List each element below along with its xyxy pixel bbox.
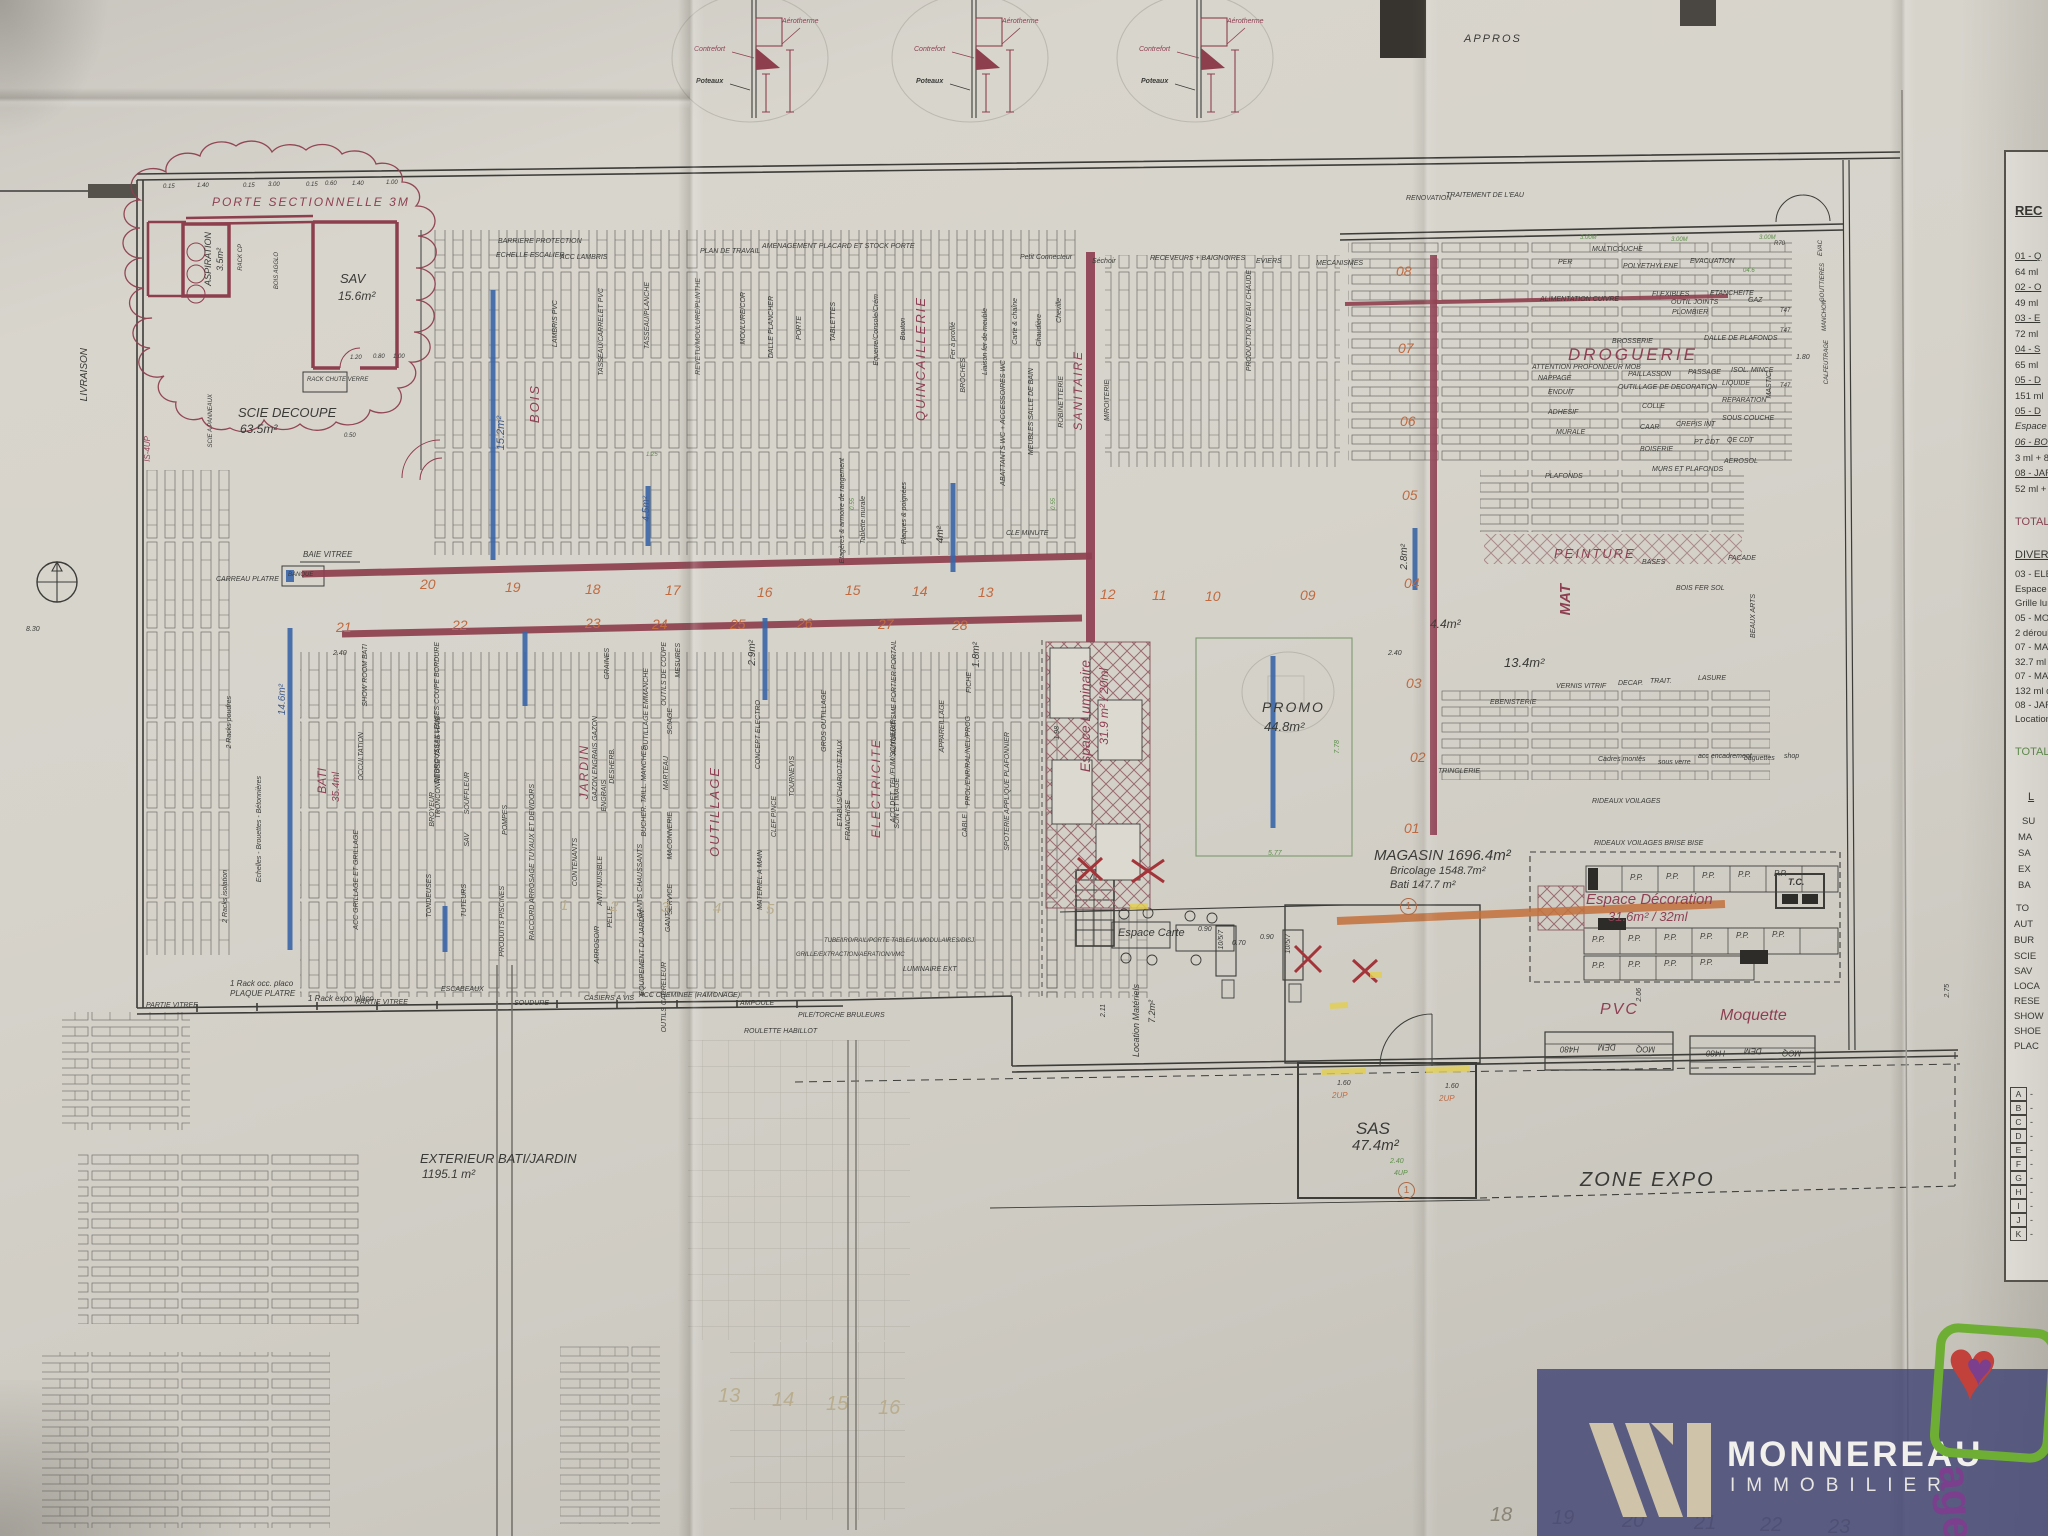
shelf-label: OUTILLAGE DE DECORATION <box>1618 384 1717 391</box>
dim: 0.50 <box>344 433 356 439</box>
shelf-label: GOUTTIERES <box>1820 263 1826 302</box>
dept-label-mat: MAT <box>1558 584 1574 615</box>
rack-text-h480: H480 <box>1560 1044 1579 1052</box>
shelf-label: ACC GRILLAGE ET GRILLAGE <box>353 830 360 930</box>
aisle-number: 22 <box>452 618 468 633</box>
shelf-label: MATERIEL A MAIN <box>757 850 764 910</box>
shelf-label: PORTE <box>796 316 803 340</box>
shelf-label: DALLE DE PLAFONDS <box>1704 335 1778 342</box>
area-label: 2.8m² <box>1400 544 1411 570</box>
aisle-number: 15 <box>845 583 861 598</box>
legend-line: SA <box>2018 849 2031 859</box>
dim: 1.40 <box>352 181 364 187</box>
shelf-label: GANTS CHAUSSANTS <box>637 844 644 918</box>
shelf-label: TONDEUSES <box>426 874 433 917</box>
dept-label-bati: BATI <box>316 768 329 794</box>
area-label: 13.4m² <box>1504 656 1544 670</box>
shelf-label: TOURNEVIS <box>789 756 796 797</box>
dept-label-outillage: OUTILLAGE <box>708 766 722 857</box>
pp-cell: P.P. <box>1664 960 1677 968</box>
shelf-label: AMPOULE <box>740 1000 774 1007</box>
watermark-sub: IMMOBILIER <box>1730 1475 1952 1497</box>
shelf-label: RECEVEURS + BAIGNOIRES <box>1150 255 1245 262</box>
legend-row-letter: C <box>2010 1115 2027 1129</box>
zone-label-exterieur: EXTERIEUR BATI/JARDIN <box>420 1152 577 1166</box>
legend-row-value: - <box>2030 1117 2033 1127</box>
shelf-label: TUTEURS <box>461 884 468 917</box>
shelf-label: GRAINES <box>604 648 611 680</box>
shelf-label: RACCORD ARROSAGE TUYAUX ET DEVIDORS <box>529 784 536 940</box>
legend-row-letter: H <box>2010 1185 2027 1199</box>
detail-label-poteaux: Poteaux <box>1141 78 1168 85</box>
aisle-number: 08 <box>1396 264 1412 279</box>
zone-label-tc: T.C. <box>1788 878 1804 887</box>
shelf-label: EQUIPEMENT DU JARDIN <box>639 910 646 996</box>
zone-label-espace-luminaire: Espace Luminaire <box>1078 660 1093 772</box>
legend-line: 04 - S <box>2015 345 2040 355</box>
shelf-label: MURALE <box>1556 429 1585 436</box>
legend-line: 07 - MATE <box>2015 672 2048 682</box>
dim: 2.40 <box>1388 650 1402 657</box>
rack-text-moq: MOQ <box>1782 1048 1801 1056</box>
area-label: 4.5m² <box>642 496 653 522</box>
floorplan-photo: Aérotherme Aérotherme Aérotherme Contref… <box>0 0 2048 1536</box>
aisle-number: 11 <box>1152 588 1167 603</box>
dim: 2.11 <box>1100 1004 1107 1017</box>
dim: 5.77 <box>1268 850 1282 857</box>
shelf-label: DESHERB. <box>609 748 616 784</box>
legend-row: B- <box>2010 1101 2033 1114</box>
shelf-label: MANCHON <box>1822 300 1828 331</box>
dim: R70 <box>1774 241 1785 247</box>
shelf-label: Bouton <box>900 318 907 340</box>
zone-label-livraison: LIVRAISON <box>80 348 91 401</box>
zone-label-bricolage: Bricolage 1548.7m² <box>1390 866 1485 878</box>
shelf-label: POMPES <box>502 805 509 835</box>
hatched-zones <box>1046 642 1584 930</box>
shelf-label: FLEXIBLES <box>1652 291 1689 298</box>
room-label-rack-chute: RACK CHUTE VERRE <box>307 377 368 383</box>
dim: 1.00 <box>393 354 405 360</box>
legend-line: 01 - Q <box>2015 252 2041 262</box>
shelf-label: Liaison fer de meuble <box>982 308 989 375</box>
legend-line: SHOW <box>2014 1012 2044 1022</box>
aisle-number: 03 <box>1406 676 1422 691</box>
detail-label-aerotherme: Aérotherme <box>1002 18 1039 25</box>
shelf-label: ETABLIS/CHARIOT/ETAUX <box>837 740 844 826</box>
shelf-label: CASIERS A VIS <box>584 995 634 1002</box>
legend-line: SHOE <box>2014 1027 2041 1037</box>
shelf-label: PLAFONDS <box>1545 473 1583 480</box>
detail-label-contrefort: Contrefort <box>694 46 725 53</box>
zone-label-appros: APPROS <box>1464 34 1522 46</box>
legend-line: BA <box>2018 881 2031 891</box>
room-label-scie-decoupe: SCIE DECOUPE <box>238 406 336 420</box>
aisle-number: 02 <box>1410 750 1426 765</box>
legend-row-letter: B <box>2010 1101 2027 1115</box>
shelf-label: SAV <box>464 833 471 847</box>
legend-row-letter: I <box>2010 1199 2027 1213</box>
shelf-label: Tablette murale <box>860 496 867 544</box>
legend-row-letter: A <box>2010 1087 2027 1101</box>
shelf-label: LUMINAIRE EXT <box>903 966 957 973</box>
legend-row: G- <box>2010 1171 2033 1184</box>
shelf-label: SPOTERIE APPLIQUE PLAFONNIER <box>1004 732 1011 851</box>
legend-panel: REC 01 - Q 64 ml 02 - O 49 ml 03 - E 72 … <box>2004 150 2048 1282</box>
shelf-label: BOISERIE <box>1640 446 1673 453</box>
dim: 1.40 <box>197 183 209 189</box>
dim: 2.40 <box>1390 1158 1404 1165</box>
label-partie-vitree: PARTIE VITREE <box>146 1002 198 1009</box>
rack-text-moq: MOQ <box>1636 1044 1655 1052</box>
legend-line: 2 déroule <box>2015 629 2048 639</box>
shelf-label: MACONNERIE <box>667 812 674 859</box>
shelf-label: TRAITEMENT DE L'EAU <box>1446 192 1524 199</box>
legend-line: 65 ml <box>2015 361 2038 371</box>
legend-line: 64 ml <box>2015 268 2038 278</box>
aisle-number: 19 <box>505 580 521 595</box>
area-label: 14.6m² <box>278 684 289 715</box>
shelf-label: Etagères & armoire de rangement <box>839 458 846 563</box>
shelf-label: LAMBRIS PVC <box>552 300 559 347</box>
area-label: 1.8m² <box>972 642 983 668</box>
dim: T47 <box>1780 328 1790 334</box>
dim: T47 <box>1780 308 1790 314</box>
shelf-label: ROBINETTERIE <box>1058 376 1065 428</box>
legend-row: K- <box>2010 1227 2033 1240</box>
zone-label-zone-expo: ZONE EXPO <box>1580 1170 1715 1191</box>
detail-label-poteaux: Poteaux <box>916 78 943 85</box>
legend-line: SU <box>2022 817 2035 827</box>
shelf-label: CABLE <box>962 814 969 837</box>
plan-note-number: 1 <box>1406 901 1412 912</box>
shelf-label: VERNIS VITRIF <box>1556 683 1606 690</box>
legend-line: EX <box>2018 865 2031 875</box>
shelf-label: FICHE <box>966 672 973 693</box>
pp-cell: P.P. <box>1736 932 1749 940</box>
legend-total-po: TOTAL PO <box>2015 747 2048 758</box>
dim: 1.20 <box>350 355 362 361</box>
legend-line: AUT <box>2014 920 2033 930</box>
shelf-label: SOUS COUCHE <box>1722 415 1774 422</box>
shelf-label: 2 Racks isolation <box>222 870 229 923</box>
pp-cell: P.P. <box>1738 871 1751 879</box>
shelf-label: CREPIS INT <box>1676 421 1715 428</box>
shelf-label: ESCABEAUX <box>441 986 484 993</box>
pp-cell: P.P. <box>1592 936 1605 944</box>
checkout-lane-label: 10/5/7 <box>1285 934 1292 953</box>
aisle-number: 26 <box>797 616 813 631</box>
legend-row-value: - <box>2030 1145 2033 1155</box>
grid-number: 18 <box>1490 1505 1512 1526</box>
legend-row-letter: K <box>2010 1227 2027 1241</box>
shelf-label: BARRIERE PROTECTION <box>498 238 582 245</box>
aisle-number: 04 <box>1404 576 1420 591</box>
legend-line: TO <box>2016 904 2029 914</box>
pp-cell: P.P. <box>1628 935 1641 943</box>
legend-line: 32.7 ml de <box>2015 658 2048 668</box>
label-banque: BANQUE <box>288 572 313 578</box>
room-area: 15.6m² <box>338 290 375 303</box>
pp-cell: P.P. <box>1774 870 1787 878</box>
shelf-label: REVETU/MOULURE/PLINTHE <box>695 278 702 375</box>
legend-line: 05 - D <box>2015 376 2041 386</box>
legend-row-value: - <box>2030 1103 2033 1113</box>
grid-number: 4 <box>713 901 721 917</box>
label-baie-vitree: BAIE VITREE <box>303 551 352 559</box>
shelf-label: ACC CHEMINEE (RAMONAGE) <box>639 992 740 999</box>
legend-row: C- <box>2010 1115 2033 1128</box>
grid-number: 5 <box>766 902 774 918</box>
shelf-label: OUTILS DE COUPE <box>661 642 668 706</box>
shelf-label: PLOMBIER <box>1672 309 1708 316</box>
pp-cell: P.P. <box>1666 873 1679 881</box>
shelf-label: FACADE <box>1728 555 1756 562</box>
shelf-label: 1 Rack expo placo <box>308 995 374 1003</box>
dept-label-quincaillerie: QUINCAILLERIE <box>914 296 928 421</box>
shelf-label: EVACUATION <box>1690 258 1735 265</box>
dim: 0.15 <box>306 182 318 188</box>
pp-cell: P.P. <box>1702 872 1715 880</box>
shelf-label: TASSEAU/PLANCHE <box>644 282 651 349</box>
shelf-label: Fer à profilé <box>950 322 957 359</box>
legend-line: MA <box>2018 833 2032 843</box>
plan-note-number: 1 <box>1404 1185 1410 1196</box>
shelf-label: ALIMENTATION CUIVRE <box>1540 296 1619 303</box>
dept-label-bati-ml: 35.4ml <box>332 772 343 802</box>
label-rideaux-brise-bise: RIDEAUX VOILAGES BRISE BISE <box>1594 840 1703 847</box>
zone-area-exterieur: 1195.1 m² <box>422 1168 475 1181</box>
shelf-label: MASTIC <box>1766 372 1773 398</box>
shelf-label: CONTENANTS <box>572 838 579 886</box>
shelf-label: BROCHES <box>960 358 967 393</box>
shelf-label: PRODUITS PISCINES <box>499 886 506 957</box>
zone-area-promo: 44.8m² <box>1264 720 1304 734</box>
zone-label-sas: SAS <box>1356 1120 1390 1138</box>
dim: 1.60 <box>1337 1080 1351 1087</box>
legend-line: Espace lu <box>2015 585 2048 595</box>
dim: 2UP <box>1439 1095 1455 1103</box>
dept-label-bois: BOIS <box>528 384 542 423</box>
zone-area-espace-luminaire: 31.9 m² / 20ml <box>1098 668 1111 745</box>
room-label-sav: SAV <box>340 272 365 286</box>
shelf-label: RENOVATION <box>1406 195 1451 202</box>
legend-row-letter: D <box>2010 1129 2027 1143</box>
label-is4up: IS-4UP <box>144 436 152 462</box>
shelf-label: ARROSOIR <box>594 926 601 963</box>
plan-linework <box>0 0 2048 1536</box>
dim: 2UP <box>1332 1092 1348 1100</box>
shelf-label: AEROSOL <box>1724 458 1758 465</box>
shelf-label: Chaudière <box>1036 314 1043 346</box>
shelf-label: PLAQUE PLATRE <box>230 990 295 998</box>
shelf-label: Cheville <box>1056 298 1063 323</box>
plan-note-circle: 1 <box>1400 898 1417 915</box>
shelf-label: Petit Connecteur <box>1020 254 1072 261</box>
grid-number: 14 <box>772 1390 794 1411</box>
aisle-number: 27 <box>878 617 894 632</box>
pp-cell: P.P. <box>1628 961 1641 969</box>
shelf-label: 1 Rack occ. placo <box>230 980 293 988</box>
room-label-porte-sectionnelle: PORTE SECTIONNELLE 3M <box>212 196 410 209</box>
zone-label-location-materiels: Location Matériels <box>1132 984 1141 1057</box>
shelf-label: SCIAGE <box>667 708 674 734</box>
shelf-label: PILE/TORCHE BRULEURS <box>798 1012 885 1019</box>
shelf-label: BASES <box>1642 559 1665 566</box>
dim: 2.06 <box>1636 988 1643 1002</box>
aisle-number: 14 <box>912 584 928 599</box>
shelf-label: BROSSERIE <box>1612 338 1653 345</box>
shelf-label: PLAN DE TRAVAIL <box>700 248 760 255</box>
legend-row-letter: E <box>2010 1143 2027 1157</box>
aisle-number: 09 <box>1300 588 1316 603</box>
detail-label-aerotherme: Aérotherme <box>782 18 819 25</box>
dept-label-jardin: JARDIN <box>578 744 591 799</box>
legend-row-value: - <box>2030 1131 2033 1141</box>
shelf-label: PASSAGE <box>1688 369 1721 376</box>
legend-line: BUR <box>2014 936 2034 946</box>
pp-cell: P.P. <box>1700 959 1713 967</box>
aisle-number: 25 <box>730 617 746 632</box>
shelf-label: EBENISTERIE <box>1490 699 1536 706</box>
pp-cell: P.P. <box>1664 934 1677 942</box>
dim: 1.98 <box>1054 726 1061 740</box>
dim: 7.78 <box>1334 740 1341 754</box>
shelf-label: GRILLE/EXTRACTION/AERATION/VMC <box>796 952 905 958</box>
shelf-label: PT CDT <box>1694 439 1719 446</box>
shelf-label: EVIERS <box>1256 258 1282 265</box>
pp-cell: P.P. <box>1700 933 1713 941</box>
shelf-label: SOUDURE <box>514 1000 549 1007</box>
legend-row-value: - <box>2030 1089 2033 1099</box>
zone-label-pvc: PVC <box>1600 1002 1639 1019</box>
legend-line: 49 ml <box>2015 299 2038 309</box>
legend-row-letter: G <box>2010 1171 2027 1185</box>
legend-line: 52 ml + <box>2015 485 2046 495</box>
plan-note-circle: 1 <box>1398 1182 1415 1199</box>
shelf-label: MULTICOUCHE <box>1592 246 1643 253</box>
shelf-label: BUCHER. TAILL. MANCHES <box>641 746 648 837</box>
dim: 4UP <box>1394 1170 1408 1177</box>
legend-line: 151 ml <box>2015 392 2044 402</box>
shelf-label: ENDUIT <box>1548 389 1574 396</box>
shelf-label: MARTEAU <box>663 756 670 790</box>
legend-row: J- <box>2010 1213 2033 1226</box>
zone-label-moquette: Moquette <box>1720 1008 1787 1025</box>
dim: 3.00M <box>1580 235 1597 241</box>
shelf-label: NAPPAGE <box>1538 375 1571 382</box>
dim: 0.90 <box>1198 926 1212 933</box>
shelf-label: LIQUIDE <box>1722 380 1750 387</box>
room-area: 3.5m² <box>216 248 225 271</box>
shelf-label: OCCULTATION <box>358 732 365 781</box>
legend-line: 07 - MATE <box>2015 643 2048 653</box>
shelf-label: EVAC <box>1818 240 1824 256</box>
grid-number: 15 <box>826 1394 848 1415</box>
shelf-label: MURS ET PLAFONDS <box>1652 466 1723 473</box>
room-label-bois-agglo: BOIS AGGLO <box>274 252 280 289</box>
zone-label-promo: PROMO <box>1262 700 1325 715</box>
grid-number: 16 <box>878 1398 900 1419</box>
legend-row-value: - <box>2030 1173 2033 1183</box>
dim: 0.15 <box>243 183 255 189</box>
dim: T47 <box>1780 383 1790 389</box>
shelf-label: PROL/ENR/RAL/NEL/PROG <box>965 716 972 805</box>
shelf-label: GAZ <box>1748 297 1762 304</box>
legend-line: SAV <box>2014 967 2032 977</box>
aisle-number: 21 <box>336 620 352 635</box>
legend-line: SCIE <box>2014 952 2036 962</box>
shelf-label: TRAIT. <box>1650 678 1672 685</box>
shelf-label: AMENAGEMENT PLACARD ET STOCK PORTE <box>762 243 915 250</box>
legend-line: Espace <box>2015 422 2047 432</box>
checkout-lane-label: 10/5/7 <box>1218 930 1225 949</box>
area-label: 2.9m² <box>748 640 759 666</box>
shelf-label: ANTI NUISIBLE <box>597 856 604 906</box>
legend-row-value: - <box>2030 1229 2033 1239</box>
label-carreau-platre: CARREAU PLATRE <box>216 576 279 583</box>
aisle-number: 23 <box>585 616 601 631</box>
shelf-label: Cadres montés <box>1598 756 1645 763</box>
shelf-label: ECHELLE ESCALIER <box>496 252 564 259</box>
shelf-label: ATTENTION PROFONDEUR MOB <box>1532 364 1641 371</box>
room-area: 63.5m² <box>240 423 277 436</box>
shelf-label: POLYETHYLENE <box>1623 263 1678 270</box>
shelf-label: OUTIL JOINTS <box>1671 299 1718 306</box>
label-rideaux: RIDEAUX VOILAGES <box>1592 798 1660 805</box>
legend-line: 03 - ELE <box>2015 570 2048 580</box>
shelf-label: BROYEUR <box>429 792 436 827</box>
dim: 0.15 <box>163 184 175 190</box>
legend-line: 06 - BO <box>2015 438 2048 448</box>
aisle-number: 24 <box>652 617 668 632</box>
legend-row: A- <box>2010 1087 2033 1100</box>
shelf-label: DECAP. <box>1618 680 1643 687</box>
legend-total: TOTAL <box>2015 517 2048 528</box>
shelf-label: SHOW ROOM BATI <box>362 644 369 706</box>
shelf-label: TABLETTES <box>830 302 837 342</box>
shelf-label: TUBE/IRO/RAIL/PORTE TABLEAU/MODULAIRES/D… <box>824 938 976 944</box>
dim: 0.55 <box>850 498 856 510</box>
pp-cell: P.P. <box>1772 931 1785 939</box>
shelf-label: Carte & chaîne <box>1012 298 1019 345</box>
rack-text-dem: DEM <box>1744 1046 1762 1054</box>
dept-label-droguerie: DROGUERIE <box>1568 346 1698 364</box>
room-label-scie-panneaux: SCIE A PANNEAUX <box>208 394 214 447</box>
legend-row: I- <box>2010 1199 2033 1212</box>
shelf-label: CONCEPT ELECTRO <box>755 700 762 769</box>
legend-row: D- <box>2010 1129 2033 1142</box>
zone-area-location-materiels: 7.2m² <box>1148 1000 1157 1023</box>
shelf-label: PER <box>1558 259 1572 266</box>
shelf-label: TASSEAU/CARRELET PVC <box>598 288 605 376</box>
dim: 0.80 <box>373 354 385 360</box>
shelf-label: DALLE PLANCHER <box>768 296 775 358</box>
aisle-number: 07 <box>1398 341 1414 356</box>
shelf-label: shop <box>1784 753 1799 760</box>
area-label: 15.2m² <box>496 416 508 450</box>
shelf-label: baguettes <box>1744 755 1775 762</box>
shelf-label: PRODUCTION D'EAU CHAUDE <box>1246 270 1253 371</box>
legend-row-value: - <box>2030 1215 2033 1225</box>
legend-title: REC <box>2015 204 2042 217</box>
zone-area-espace-decoration: 31.6m² / 32ml <box>1608 910 1687 924</box>
top-detail-sketches <box>672 0 1273 122</box>
dim: 2.40 <box>333 650 347 657</box>
shelf-label: COLLE <box>1642 403 1665 410</box>
shelf-label: LASURE <box>1698 675 1726 682</box>
shelf-label: CAAR <box>1640 424 1659 431</box>
